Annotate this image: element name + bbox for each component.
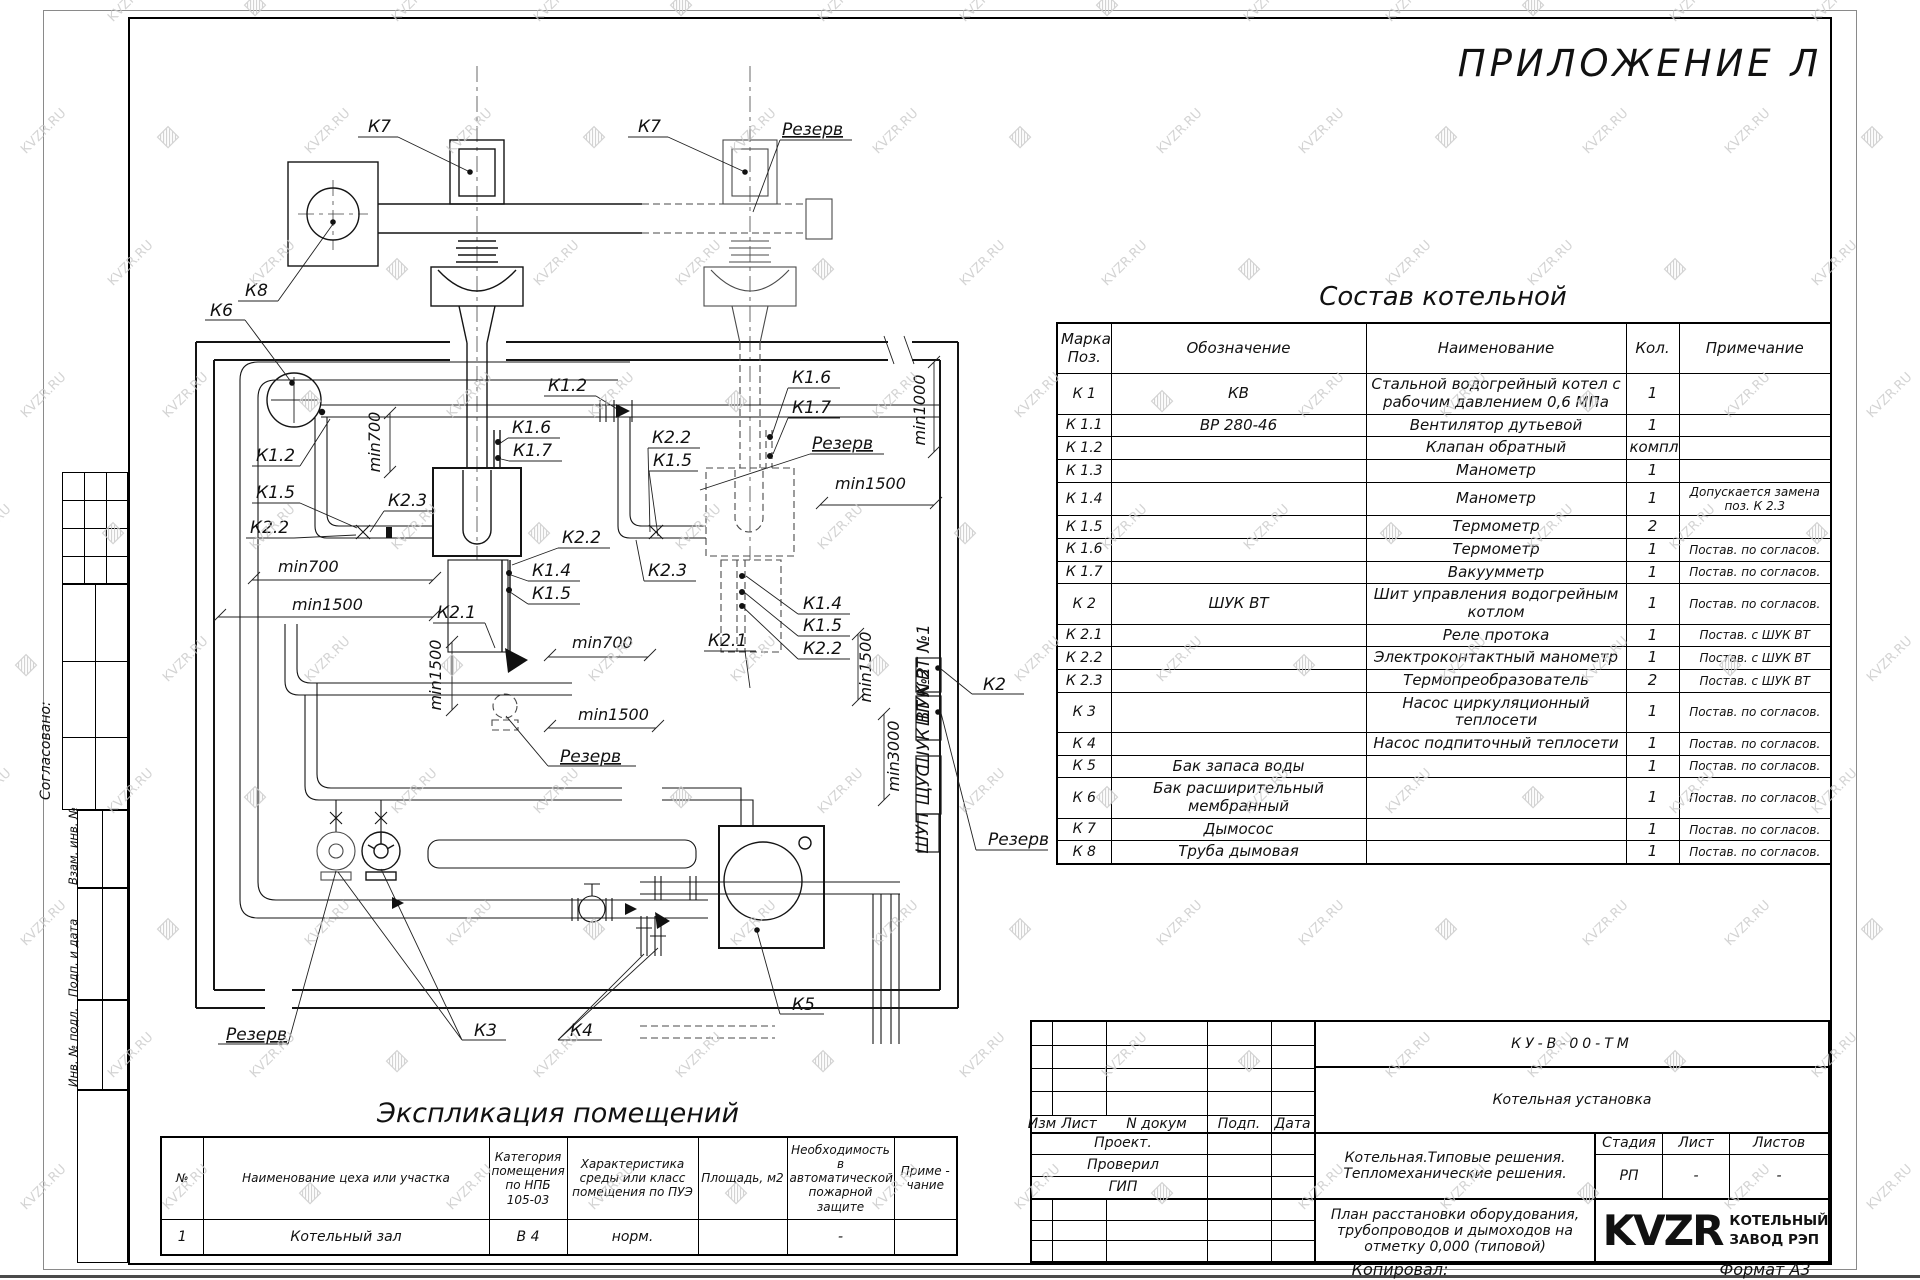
sheets-header: Листов [1730,1132,1828,1154]
table-cell: Термопреобразователь [1366,669,1626,692]
explication-table: №Наименование цеха или участкаКатегория … [160,1136,958,1256]
table-cell: Постав. с ШУК ВТ [1679,624,1831,647]
column-header: Примечание [1679,323,1831,374]
plan-label: К2.2 [652,428,691,448]
centerlines [298,66,750,560]
plan-label: min1500 [426,640,445,711]
table-cell: Труба дымовая [1111,841,1366,864]
table-cell: Постав. по согласов. [1679,584,1831,624]
boiler-plan-drawing: К7К7РезервК8К6К1.2К1.5К2.2min700min1500К… [140,60,1050,1070]
plan-label: К4 [570,1021,593,1041]
change-col-ndoc: N докум [1106,1115,1207,1132]
table-row: К 1КВСтальной водогрейный котел с рабочи… [1057,374,1831,414]
table-cell: К 7 [1057,818,1111,841]
object-name: Котельная установка [1316,1068,1828,1132]
plan-label: Резерв [560,747,621,767]
table-cell: К 4 [1057,733,1111,756]
table-cell: 1 [1626,460,1679,483]
logo-text: KVZR [1603,1206,1723,1255]
table-cell: К 1 [1057,374,1111,414]
column-header: Необходимость в автоматической пожарной … [787,1137,894,1219]
table-cell: К 1.3 [1057,460,1111,483]
watermark-logo-icon: ▨ [1855,120,1886,151]
document-code: КУ-В-00-ТМ [1316,1022,1828,1066]
table-cell: К 1.6 [1057,538,1111,561]
table-cell: Термометр [1366,516,1626,539]
table-cell: Насос подпиточный теплосети [1366,733,1626,756]
composition-table: Марка Поз.ОбозначениеНаименованиеКол.При… [1056,322,1832,865]
table-cell [698,1219,787,1255]
column-header: Категория помещения по НПБ 105-03 [489,1137,567,1219]
plan-label: К1.4 [803,594,842,614]
format-label: Формат А3 [1695,1260,1835,1279]
table-cell: 1 [1626,584,1679,624]
table-cell: Постав. по согласов. [1679,755,1831,778]
change-col-podp: Подп. [1207,1115,1271,1132]
plan-label: К1.7 [792,398,831,418]
watermark-text: KVZR.RU [1864,1162,1915,1213]
plan-label: К1.5 [256,483,295,503]
table-cell: Бак расширительный мембранный [1111,778,1366,818]
table-cell: 1 [1626,624,1679,647]
table-row: К 1.1ВР 280-46Вентилятор дутьевой1 [1057,414,1831,437]
water-storage-tank [724,837,811,920]
table-cell: К 2.3 [1057,669,1111,692]
table-cell: 1 [1626,482,1679,515]
table-row: К 2.3Термопреобразователь2Постав. с ШУК … [1057,669,1831,692]
table-row: К 1.5Термометр2 [1057,516,1831,539]
column-header: Наименование [1366,323,1626,374]
table-cell: К 3 [1057,692,1111,732]
plan-label: ШУП [913,812,933,854]
change-col-izm: Изм [1032,1115,1052,1132]
table-row: К 1.7Вакуумметр1Постав. по согласов. [1057,561,1831,584]
plan-label: min1000 [910,375,929,446]
table-cell: Вакуумметр [1366,561,1626,584]
sheet-header: Лист [1663,1132,1729,1154]
table-cell: Реле протока [1366,624,1626,647]
plan-label: min700 [572,633,633,652]
plan-label: К1.5 [532,584,571,604]
table-cell: 1 [1626,561,1679,584]
margin-label-agreed: Согласовано: [38,701,54,800]
table-cell: К 2.2 [1057,647,1111,670]
plan-label: К7 [638,117,661,137]
table-cell: К 1.7 [1057,561,1111,584]
plan-label: К2.2 [562,528,601,548]
watermark-text: KVZR.RU [0,502,14,553]
watermark-logo-icon: ▨ [9,648,40,679]
plan-label: К2.3 [388,491,427,511]
plan-label: К1.4 [532,561,571,581]
table-row: 1Котельный залВ 4норм.- [161,1219,957,1255]
watermark-logo-icon: ▨ [1855,912,1886,943]
plan-label: К2.2 [250,518,289,538]
table-cell: 2 [1626,669,1679,692]
table-cell: Постав. по согласов. [1679,733,1831,756]
plan-label: К2.3 [648,561,687,581]
table-row: К 4Насос подпиточный теплосети1Постав. п… [1057,733,1831,756]
table-cell [1366,755,1626,778]
table-cell [1111,460,1366,483]
plan-label: min1500 [856,632,875,703]
table-row: К 5Бак запаса воды1Постав. по согласов. [1057,755,1831,778]
table-cell [1111,647,1366,670]
table-cell: - [787,1219,894,1255]
margin-box-replace-inv: Взам. инв. № [77,810,128,888]
table-cell: 1 [161,1219,203,1255]
table-cell: Допускается замена поз. К 2.3 [1679,482,1831,515]
table-cell [1111,669,1366,692]
plan-label: К3 [474,1021,497,1041]
column-header: Характеристика среды или класс помещения… [567,1137,698,1219]
composition-header-row: Марка Поз.ОбозначениеНаименованиеКол.При… [1057,323,1831,374]
table-cell: Насос циркуляционный теплосети [1366,692,1626,732]
table-cell: К 1.1 [1057,414,1111,437]
column-header: Обозначение [1111,323,1366,374]
watermark-text: KVZR.RU [0,0,14,25]
table-cell: Постав. с ШУК ВТ [1679,647,1831,670]
table-cell: 1 [1626,538,1679,561]
table-cell: К 1.2 [1057,437,1111,460]
table-cell: К 1.5 [1057,516,1111,539]
table-cell: 1 [1626,692,1679,732]
table-row: К 1.4Манометр1Допускается замена поз. К … [1057,482,1831,515]
plan-label: ЩУС [914,764,934,805]
plan-label: К1.2 [548,376,587,396]
circulation-pump [362,832,400,880]
table-row: К 2.2Электроконтактный манометр1Постав. … [1057,647,1831,670]
table-cell: Клапан обратный [1366,437,1626,460]
reserve-exhauster [704,140,832,343]
table-row: К 8Труба дымовая1Постав. по согласов. [1057,841,1831,864]
table-cell [1111,482,1366,515]
copied-label: Копировал: [1280,1260,1520,1279]
plan-label: К1.7 [513,441,552,461]
table-row: К 3Насос циркуляционный теплосети1Постав… [1057,692,1831,732]
plan-label: К1.5 [803,616,842,636]
table-cell [1679,437,1831,460]
title-block: Изм Лист N докум Подп. Дата Проект. Пров… [1030,1020,1830,1263]
table-cell [1111,516,1366,539]
table-cell: Дымосос [1111,818,1366,841]
table-cell: Котельный зал [203,1219,489,1255]
table-cell [894,1219,957,1255]
table-cell: норм. [567,1219,698,1255]
plan-label: К2.1 [437,603,476,623]
margin-box-sign-date: Подп. и дата [77,888,128,1000]
table-cell: Постав. по согласов. [1679,538,1831,561]
table-cell: Манометр [1366,482,1626,515]
table-cell: Постав. с ШУК ВТ [1679,669,1831,692]
stage-value: РП [1596,1154,1662,1198]
table-cell: КВ [1111,374,1366,414]
company-logo-cell: KVZR КОТЕЛЬНЫЙ ЗАВОД РЭП [1596,1200,1828,1261]
margin-box-inv-orig: Инв. № подл. [77,1000,128,1090]
table-cell: 1 [1626,414,1679,437]
table-row: К 2.1Реле протока1Постав. с ШУК ВТ [1057,624,1831,647]
plan-label: Резерв [812,434,873,454]
plan-label: К1.6 [512,418,551,438]
page-title: ПРИЛОЖЕНИЕ Л [1440,42,1840,85]
plan-label: min1500 [292,595,363,614]
plan-label: Резерв [226,1025,287,1045]
watermark-text: KVZR.RU [1864,634,1915,685]
plan-label: К2.2 [803,639,842,659]
company-name: КОТЕЛЬНЫЙ ЗАВОД РЭП [1729,1212,1828,1248]
table-cell: 1 [1626,733,1679,756]
table-cell [1679,460,1831,483]
valve-markers [289,169,941,933]
plan-label: min3000 [884,721,903,792]
table-cell: Шит управления водогрейным котлом [1366,584,1626,624]
pipework [240,362,940,1044]
reserve-pump [317,832,355,880]
table-cell [1111,538,1366,561]
table-cell: К 2.1 [1057,624,1111,647]
reserve-boiler [492,204,806,1038]
table-cell: 1 [1626,647,1679,670]
table-cell: К 8 [1057,841,1111,864]
role-project: Проект. [1034,1132,1208,1154]
change-col-list: Лист [1052,1115,1106,1132]
drawing-sheet: Согласовано: Взам. инв. № Подп. и дата И… [0,0,1920,1280]
table-cell: К 2 [1057,584,1111,624]
table-row: К 7Дымосос1Постав. по согласов. [1057,818,1831,841]
table-cell: ВР 280-46 [1111,414,1366,437]
table-cell: 1 [1626,818,1679,841]
table-cell: 1 [1626,778,1679,818]
table-row: К 6Бак расширительный мембранный1Постав.… [1057,778,1831,818]
table-cell: 1 [1626,841,1679,864]
column-header: Приме - чание [894,1137,957,1219]
table-cell [1111,624,1366,647]
plan-label: К2 [983,675,1006,695]
plan-label: Резерв [782,120,843,140]
table-cell: Манометр [1366,460,1626,483]
sheet-value: - [1663,1154,1729,1198]
table-cell: Стальной водогрейный котел с рабочим дав… [1366,374,1626,414]
table-cell: 1 [1626,374,1679,414]
explication-table-title: Экспликация помещений [160,1098,956,1129]
table-row: К 2ШУК ВТШит управления водогрейным котл… [1057,584,1831,624]
margin-grid-agreed [62,584,128,810]
table-cell [1111,437,1366,460]
plan-label: min700 [365,412,384,473]
column-header: Кол. [1626,323,1679,374]
plan-label: min1500 [578,705,649,724]
table-cell: ШУК ВТ [1111,584,1366,624]
table-cell: К 5 [1057,755,1111,778]
sheets-value: - [1730,1154,1828,1198]
table-cell [1111,692,1366,732]
table-cell: Постав. по согласов. [1679,692,1831,732]
table-cell: Бак запаса воды [1111,755,1366,778]
table-cell: Постав. по согласов. [1679,778,1831,818]
sheet-title: План расстановки оборудования, трубопров… [1316,1200,1594,1261]
plan-label: К2.1 [708,631,747,651]
column-header: Площадь, м2 [698,1137,787,1219]
change-col-data: Дата [1271,1115,1314,1132]
table-row: К 1.3Манометр1 [1057,460,1831,483]
table-cell: Постав. по согласов. [1679,818,1831,841]
table-cell: 2 [1626,516,1679,539]
table-cell [1679,374,1831,414]
column-header: № [161,1137,203,1219]
plan-label: К1.6 [792,368,831,388]
table-cell: 1 [1626,755,1679,778]
table-cell: Постав. по согласов. [1679,561,1831,584]
table-row: К 1.2Клапан обратныйкомпл. [1057,437,1831,460]
table-cell: Электроконтактный манометр [1366,647,1626,670]
plan-label: К5 [792,995,815,1015]
table-cell: Термометр [1366,538,1626,561]
margin-box-bottom [77,1090,128,1263]
plan-label: К8 [245,281,268,301]
watermark-text: KVZR.RU [0,766,14,817]
table-cell [1679,516,1831,539]
plan-label: min1500 [835,474,906,493]
column-header: Марка Поз. [1057,323,1111,374]
table-cell [1366,841,1626,864]
table-cell [1366,778,1626,818]
table-cell [1111,733,1366,756]
role-checked: Проверил [1034,1154,1208,1176]
column-header: Наименование цеха или участка [203,1137,489,1219]
explication-header-row: №Наименование цеха или участкаКатегория … [161,1137,957,1219]
project-description: Котельная.Типовые решения. Тепломеханиче… [1316,1134,1594,1198]
table-cell: Постав. по согласов. [1679,841,1831,864]
table-cell: В 4 [489,1219,567,1255]
stage-header: Стадия [1596,1132,1662,1154]
table-cell [1366,818,1626,841]
composition-table-title: Состав котельной [1056,282,1830,312]
scan-edge [0,1275,1920,1278]
role-gip: ГИП [1034,1176,1208,1198]
plan-label: ШУК ВТ №2 [914,667,934,769]
plan-label: К1.5 [653,451,692,471]
plan-label: Резерв [988,830,1049,850]
table-cell: Вентилятор дутьевой [1366,414,1626,437]
plan-label: К6 [210,301,233,321]
table-cell [1679,414,1831,437]
table-cell: К 1.4 [1057,482,1111,515]
plan-label: К1.2 [256,446,295,466]
table-cell [1111,561,1366,584]
table-row: К 1.6Термометр1Постав. по согласов. [1057,538,1831,561]
plan-label: min700 [278,557,339,576]
table-cell: компл. [1626,437,1679,460]
table-cell: К 6 [1057,778,1111,818]
margin-grid-top [62,472,128,584]
watermark-text: KVZR.RU [1864,370,1915,421]
plan-label: К7 [368,117,391,137]
